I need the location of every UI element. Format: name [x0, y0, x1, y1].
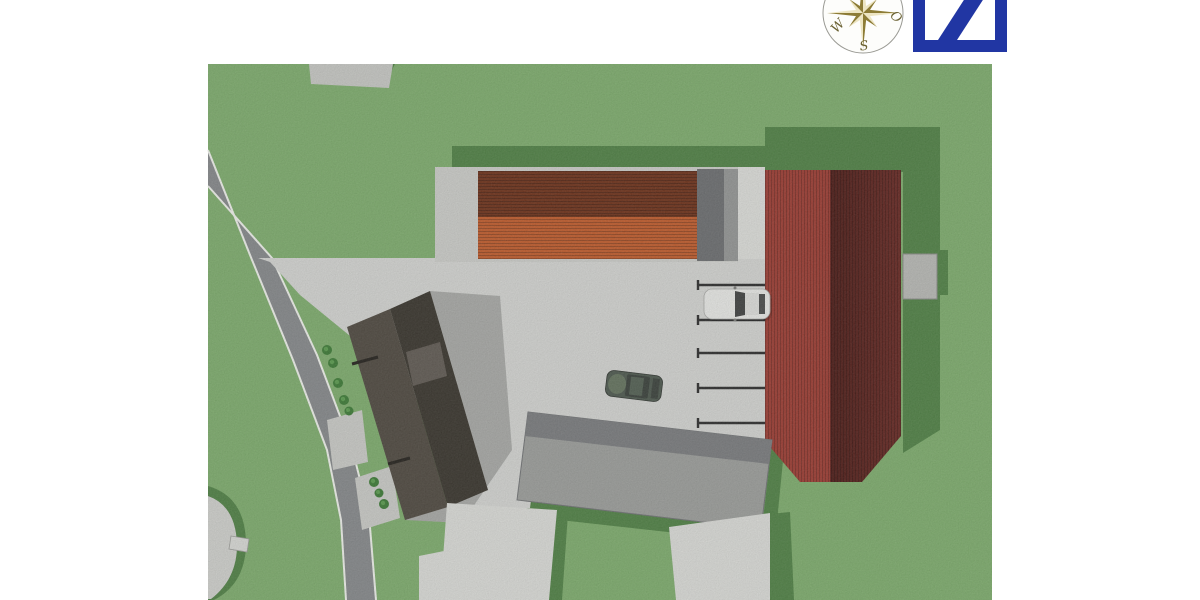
texture-light [208, 64, 992, 600]
plan-area [208, 64, 992, 600]
site-plan-rendering: W O S [0, 0, 1200, 600]
site-plan-page: W O S [0, 0, 1200, 600]
